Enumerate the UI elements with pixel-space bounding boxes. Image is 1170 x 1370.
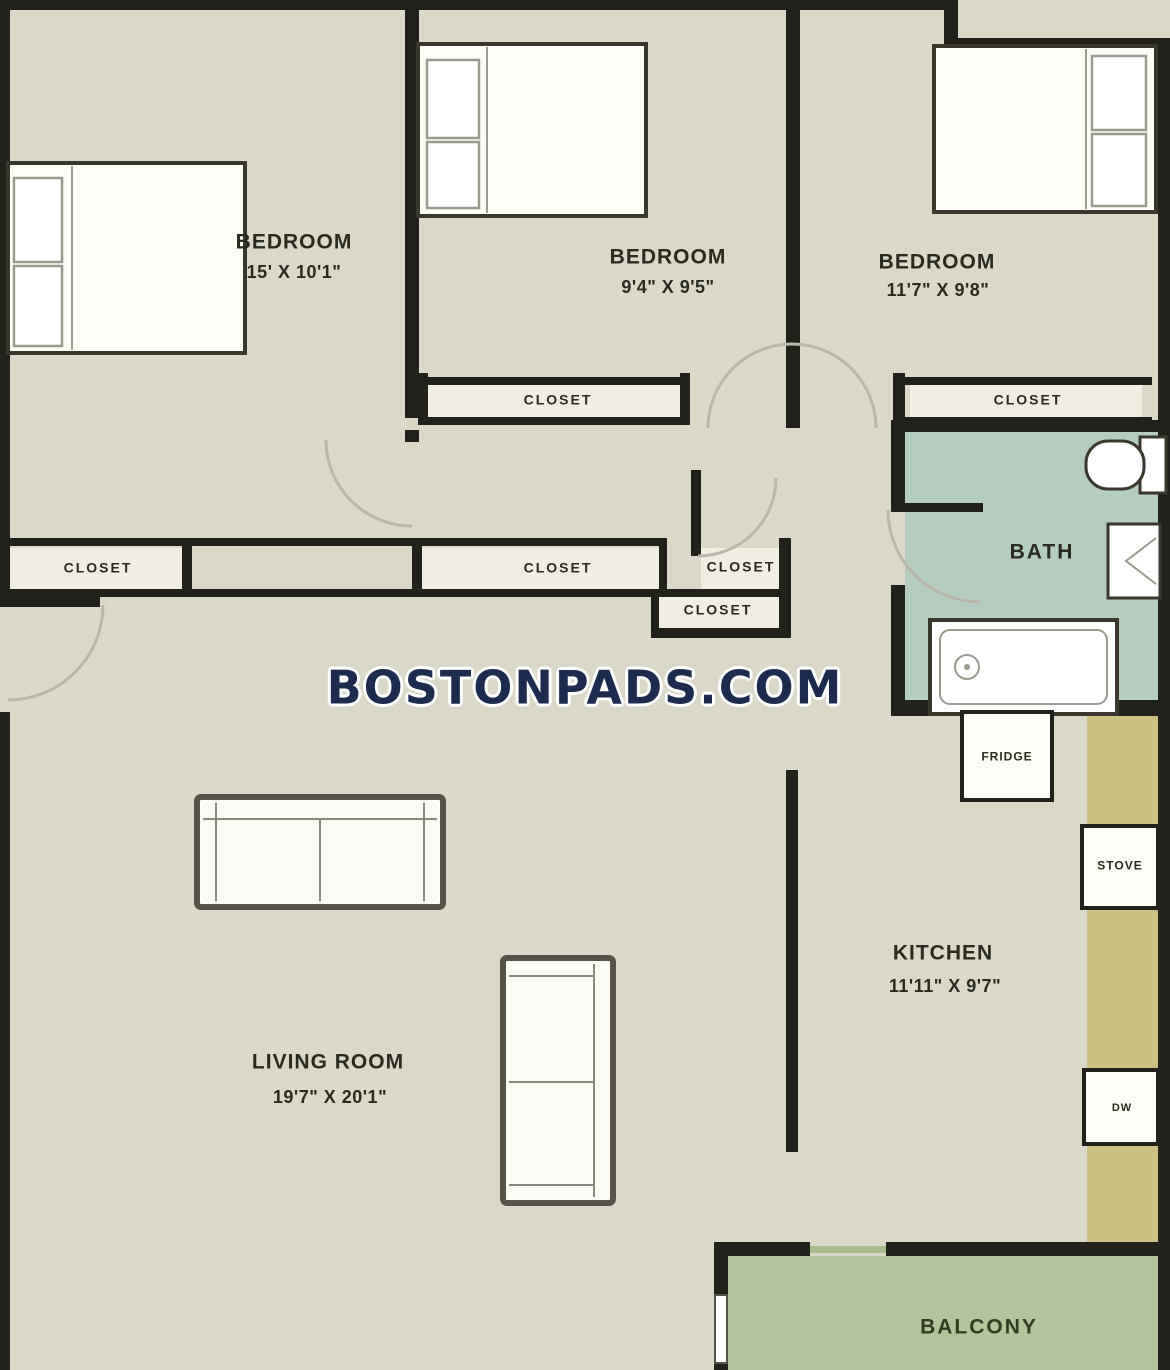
toilet-icon xyxy=(1086,437,1166,493)
bedroom3-closet-label: CLOSET xyxy=(994,392,1063,407)
bed-icon-bedroom-3 xyxy=(934,46,1156,212)
kitchen-dimensions: 11'11" X 9'7" xyxy=(889,977,1001,997)
bath-label: BATH xyxy=(1010,540,1075,563)
hall-long-closet-label: CLOSET xyxy=(524,560,593,575)
stove-label: STOVE xyxy=(1097,859,1142,872)
kitchen-counter xyxy=(1087,716,1158,1242)
bed-icon-bedroom-2 xyxy=(418,44,646,216)
dishwasher-label: DW xyxy=(1112,1102,1132,1114)
bathtub-icon xyxy=(930,620,1117,714)
balcony-window xyxy=(715,1295,727,1363)
bedroom2-dimensions: 9'4" X 9'5" xyxy=(621,278,714,298)
bedroom1-label: BEDROOM xyxy=(236,230,353,253)
bedroom3-dimensions: 11'7" X 9'8" xyxy=(887,281,990,301)
living-room-label: LIVING ROOM xyxy=(252,1050,404,1073)
living-room-dimensions: 19'7" X 20'1" xyxy=(273,1088,387,1108)
kitchen-label: KITCHEN xyxy=(893,941,993,964)
hall-small-closet-label: CLOSET xyxy=(707,559,776,574)
bedroom2-label: BEDROOM xyxy=(610,245,727,268)
bedroom2-closet-label: CLOSET xyxy=(524,392,593,407)
bed-icon-bedroom-1 xyxy=(8,163,245,353)
hall-left-closet-label: CLOSET xyxy=(64,560,133,575)
floor-plan: BEDROOM 15' X 10'1" BEDROOM 9'4" X 9'5" … xyxy=(0,0,1170,1370)
bedroom1-dimensions: 15' X 10'1" xyxy=(247,263,342,283)
sink-icon xyxy=(1108,524,1160,598)
hall-lower-closet-label: CLOSET xyxy=(684,602,753,617)
sofa-icon-horizontal xyxy=(197,797,443,907)
bedroom3-label: BEDROOM xyxy=(879,250,996,273)
balcony-slider-sill xyxy=(810,1246,886,1253)
bostonpads-watermark: BOSTONPADS.COM xyxy=(327,663,844,714)
balcony-floor xyxy=(728,1256,1158,1370)
fridge-label: FRIDGE xyxy=(981,750,1032,763)
balcony-label: BALCONY xyxy=(920,1315,1038,1338)
sofa-icon-vertical xyxy=(503,958,613,1203)
